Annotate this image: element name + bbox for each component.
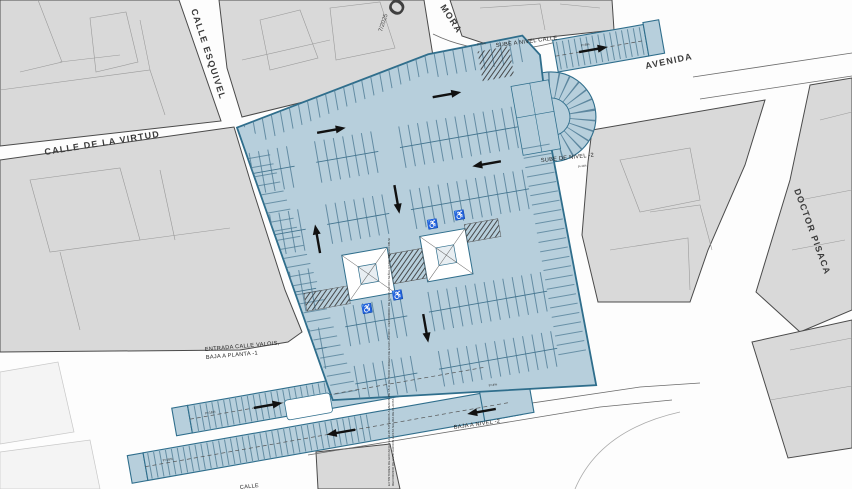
ped-walkway-hatch bbox=[388, 248, 427, 283]
plan-canvas: ♿ ♿ ♿ ♿ P=6% P=4% P=4% P=16% P=16% P=4% … bbox=[0, 0, 852, 489]
block-center-right bbox=[582, 100, 765, 302]
wheelchair-icon: ♿ bbox=[361, 302, 374, 315]
core-east bbox=[420, 229, 473, 282]
wheelchair-icon: ♿ bbox=[426, 217, 439, 230]
wheelchair-icon: ♿ bbox=[453, 208, 466, 221]
fire-note-line2: RECORRIDO DE EVACUACION HASTA SALIDA DE … bbox=[391, 399, 395, 486]
slope-label: P=4% bbox=[578, 163, 587, 168]
street-label-bottom-fragment: CALLE bbox=[240, 483, 260, 489]
parking-plan-drawing: ♿ ♿ ♿ ♿ P=6% P=4% P=4% P=16% P=16% P=4% … bbox=[0, 0, 852, 489]
wheelchair-icon: ♿ bbox=[391, 288, 404, 301]
faint-parcels bbox=[0, 362, 100, 489]
block-top-left bbox=[0, 0, 221, 146]
